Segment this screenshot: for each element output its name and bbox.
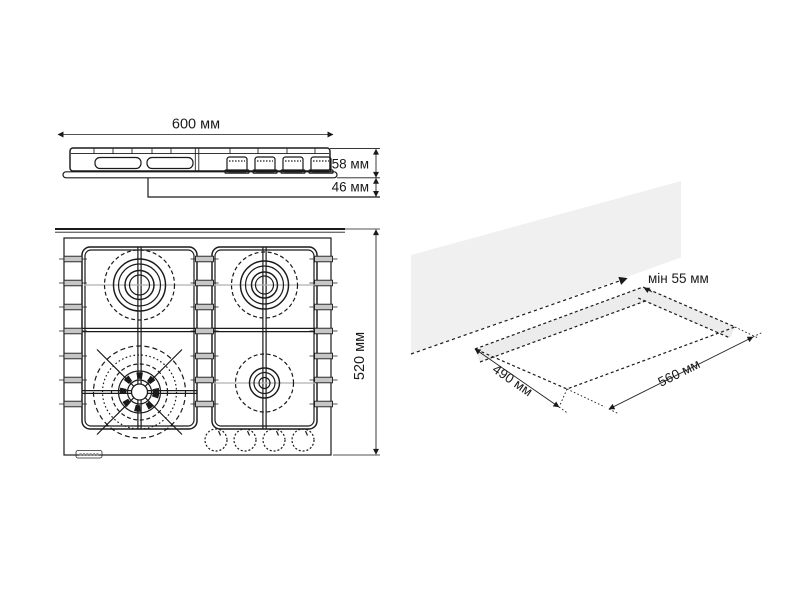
grate-tab (59, 304, 87, 310)
control-knob (234, 429, 256, 451)
burner-front-right (214, 354, 315, 412)
right-overlap-band (638, 287, 735, 338)
extension-line (567, 389, 605, 407)
grate-tab (59, 353, 87, 359)
grate-tab (191, 353, 219, 359)
control-knob (263, 429, 285, 451)
brand-logo (76, 451, 102, 459)
grate-tab (191, 328, 219, 334)
extension-line (753, 333, 762, 338)
top-view-drawing: 520 мм (55, 229, 380, 458)
cutout-depth-label: 490 мм (490, 361, 535, 399)
grate-tab (59, 280, 87, 286)
extension-line (560, 389, 567, 405)
grate-tab (59, 328, 87, 334)
right-grate-frame (212, 247, 317, 429)
height-below-label: 46 мм (332, 180, 369, 195)
cutout-view-drawing: мін 55 мм 490 мм 560 мм (411, 181, 762, 414)
burner-back-right (214, 252, 315, 318)
width-dimension-label: 600 мм (172, 117, 220, 133)
extension-line (609, 409, 619, 414)
side-view-drawing: 600 мм 58 мм 46 мм (58, 117, 380, 198)
control-knob (205, 429, 227, 451)
extension-line (735, 327, 757, 338)
extension-line (559, 407, 567, 413)
cutout-width-label: 560 мм (656, 356, 703, 389)
grate-tab (191, 304, 219, 310)
grate-tab (191, 256, 219, 262)
hob-installation-drawing: 600 мм 58 мм 46 мм (0, 0, 800, 600)
top-band-ticks (94, 149, 315, 154)
pan-support-profile (95, 158, 141, 169)
depth-dimension-label: 520 мм (352, 332, 368, 380)
control-knob (292, 429, 314, 451)
grate-tab (59, 401, 87, 407)
control-knobs-row (205, 429, 314, 451)
wall-clearance-label: мін 55 мм (648, 271, 709, 286)
grate-tab (191, 377, 219, 383)
burner-back-left (84, 250, 195, 320)
left-grate-frame (82, 247, 197, 429)
hob-body-profile (70, 148, 330, 171)
grate-tab (191, 401, 219, 407)
pan-support-profile (147, 158, 193, 169)
burner-front-left-wok (82, 346, 197, 438)
grate-tab (59, 256, 87, 262)
height-above-label: 58 мм (332, 157, 369, 172)
grate-tab (59, 377, 87, 383)
